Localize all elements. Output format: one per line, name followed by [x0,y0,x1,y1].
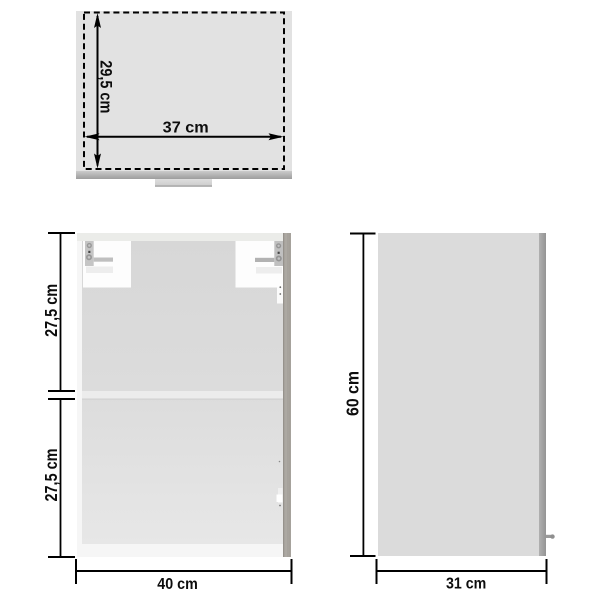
svg-text:27,5 cm: 27,5 cm [41,449,61,502]
svg-text:27,5 cm: 27,5 cm [41,284,61,337]
svg-text:29,5 cm: 29,5 cm [97,60,116,113]
svg-text:60 cm: 60 cm [343,371,363,416]
svg-text:37 cm: 37 cm [163,120,209,137]
svg-text:31 cm: 31 cm [446,576,486,593]
svg-text:40 cm: 40 cm [157,576,198,593]
